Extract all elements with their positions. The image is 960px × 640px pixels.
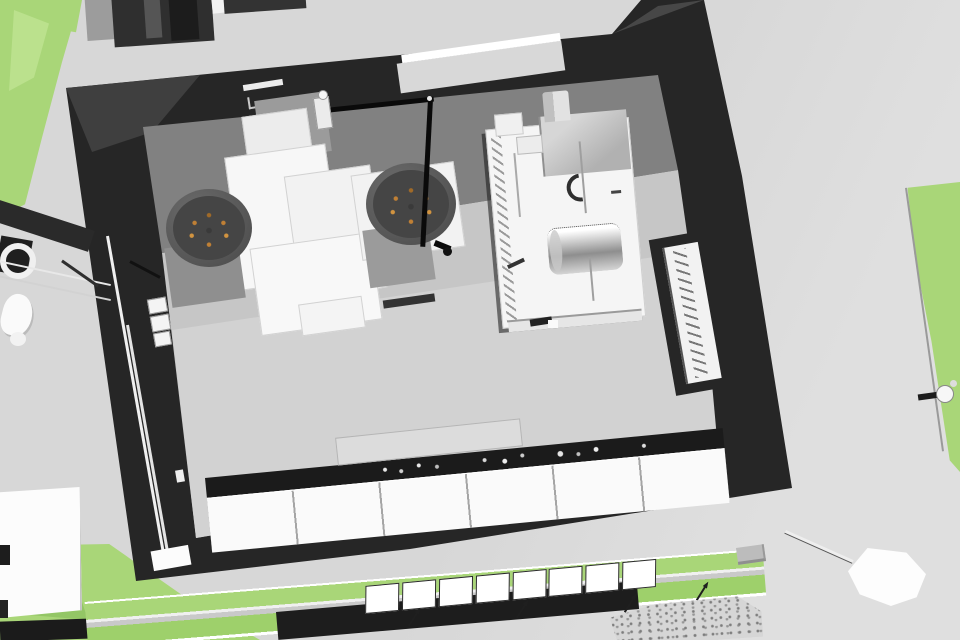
left-edge-dark-2 xyxy=(0,600,8,618)
roof-panel xyxy=(365,583,399,614)
bottom-left-dark-strip xyxy=(0,618,95,640)
roof-panel xyxy=(512,569,546,600)
west-wall-box-2 xyxy=(150,313,171,332)
kettle-lid-left xyxy=(173,196,245,260)
kettle-cylinder-right xyxy=(366,163,456,245)
render-viewport[interactable] xyxy=(0,0,960,640)
island-floor-tick xyxy=(548,320,558,328)
island-outrigger xyxy=(494,112,524,136)
roof-panel xyxy=(585,562,619,593)
neighbour-stripe-dark xyxy=(169,0,200,41)
neighbour-stripe-light xyxy=(144,0,163,39)
island-side-tab xyxy=(516,135,543,155)
roof-panel xyxy=(549,566,583,597)
west-wall-box-3 xyxy=(153,331,172,348)
white-slab xyxy=(0,487,82,618)
pipe-valve-knob xyxy=(318,90,328,100)
bench-white-blob-small xyxy=(10,332,26,346)
roof-panel xyxy=(622,559,656,590)
roof-panel xyxy=(402,579,436,610)
kettle-cylinder-left xyxy=(166,189,252,267)
roof-panel xyxy=(439,576,473,607)
left-edge-dark-1 xyxy=(0,545,10,565)
roof-panel xyxy=(475,573,509,604)
tap-head xyxy=(936,385,954,403)
kettle-lid-right xyxy=(373,170,449,238)
pipe-joint xyxy=(427,96,432,101)
pipe-end-cap xyxy=(443,247,452,256)
tap-tip xyxy=(950,380,957,387)
island-chimney xyxy=(542,90,571,122)
equipment-island xyxy=(480,103,649,335)
neighbour-dark-block xyxy=(111,0,214,47)
